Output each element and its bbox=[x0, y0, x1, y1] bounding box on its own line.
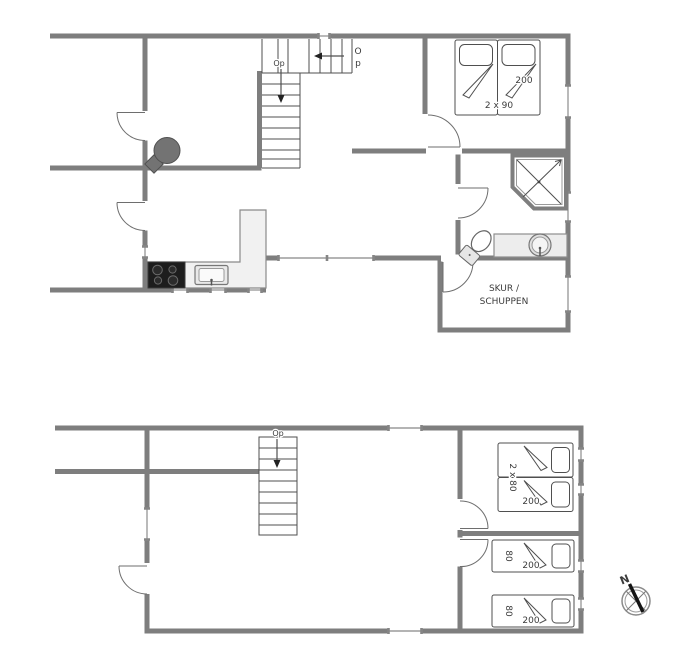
stair-label: Op bbox=[272, 429, 283, 438]
pillow bbox=[552, 599, 570, 623]
door-swing bbox=[428, 115, 460, 147]
stair-up-label-p: p bbox=[355, 59, 361, 69]
stair-treads bbox=[259, 448, 297, 525]
upper-staircase: O p Op bbox=[262, 39, 362, 168]
pillow bbox=[552, 544, 570, 568]
door-swing bbox=[460, 501, 488, 529]
floor-plan-page: O p Op 200 2 x 90 bbox=[0, 0, 674, 667]
lower-doors bbox=[119, 501, 488, 594]
upper-bathroom bbox=[458, 156, 567, 267]
washbasin-icon bbox=[494, 234, 567, 257]
up-arrow-head bbox=[314, 53, 322, 60]
lower-staircase: Op bbox=[259, 429, 297, 535]
stair-treads bbox=[262, 39, 342, 159]
stair-up-label-o: O bbox=[354, 47, 361, 57]
door-swing bbox=[443, 262, 473, 292]
upper-bedroom-beds: 200 2 x 90 bbox=[455, 40, 540, 115]
lower-bedroom-middle-bed: 80 200 bbox=[492, 540, 574, 572]
lower-floor-plan: Op 2 x 80 200 80 200 80 bbox=[55, 425, 585, 635]
bed-length-label: 200 bbox=[515, 76, 532, 86]
shed-name-line1: SKUR / bbox=[489, 284, 520, 294]
lower-bedroom-double-beds: 2 x 80 200 bbox=[498, 443, 573, 512]
bed-width-label: 80 bbox=[503, 605, 513, 617]
stair-down-label: Op bbox=[273, 59, 284, 68]
shower-icon bbox=[513, 156, 567, 209]
bed-width-label: 80 bbox=[503, 550, 513, 562]
stove-icon bbox=[148, 262, 185, 288]
door-swing bbox=[119, 566, 147, 594]
bed-size-label: 2 x 90 bbox=[485, 101, 514, 111]
bed-length-label: 200 bbox=[522, 497, 539, 507]
compass-icon: N bbox=[618, 572, 650, 615]
shed-label: SKUR / SCHUPPEN bbox=[480, 284, 529, 307]
door-swing bbox=[458, 188, 488, 218]
upper-floor-plan: O p Op 200 2 x 90 bbox=[50, 33, 572, 333]
pillow bbox=[552, 448, 570, 473]
pillow bbox=[502, 45, 535, 66]
door-swing bbox=[117, 203, 145, 231]
door-swing bbox=[117, 113, 145, 141]
floor-plan-drawing: O p Op 200 2 x 90 bbox=[0, 0, 674, 667]
stair-outline bbox=[259, 437, 297, 535]
door-swing bbox=[460, 540, 488, 567]
bed-length-label: 200 bbox=[522, 561, 539, 571]
pillow bbox=[552, 482, 570, 507]
sink-icon bbox=[195, 266, 228, 286]
bed-length-label: 200 bbox=[522, 616, 539, 626]
down-arrow-head bbox=[278, 95, 285, 103]
shed-name-line2: SCHUPPEN bbox=[480, 297, 529, 307]
bed-size-label: 2 x 80 bbox=[507, 463, 517, 492]
down-arrow-head bbox=[274, 460, 281, 468]
lower-bedroom-bottom-bed: 80 200 bbox=[492, 595, 574, 627]
pillow bbox=[460, 45, 493, 66]
kitchen bbox=[148, 210, 266, 288]
